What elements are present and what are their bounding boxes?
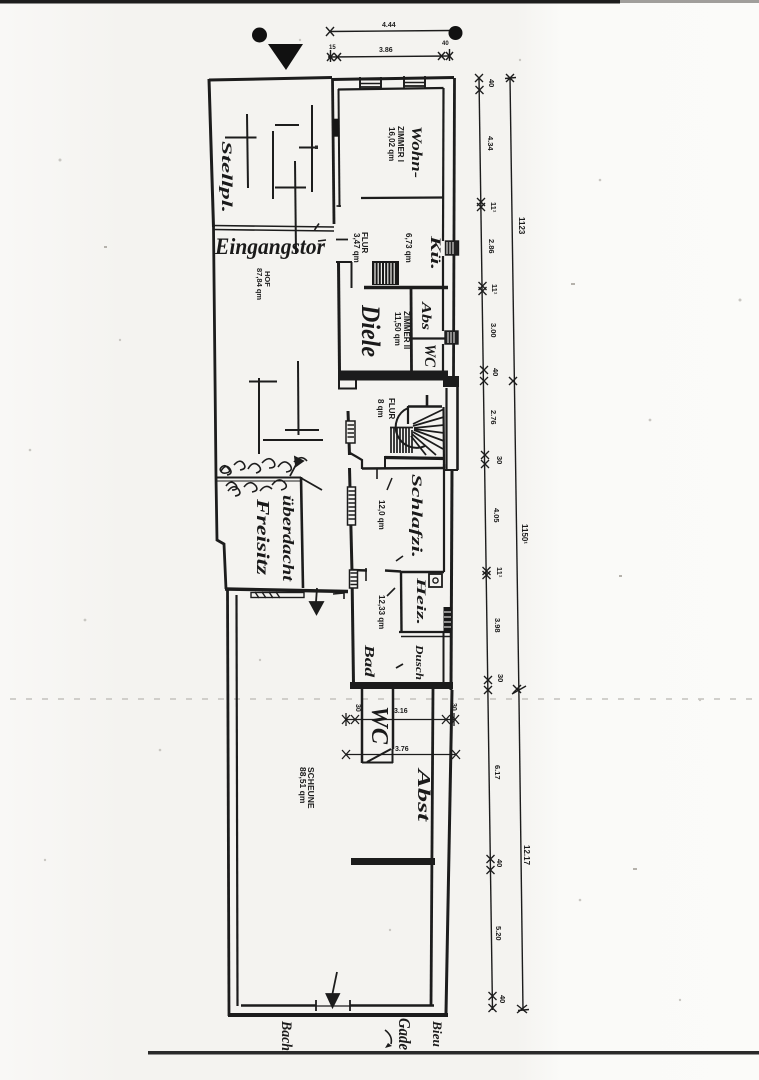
svg-text:12.17: 12.17 <box>522 845 531 866</box>
svg-text:11¹: 11¹ <box>495 567 504 578</box>
svg-text:40: 40 <box>442 41 449 47</box>
svg-text:Abst: Abst <box>414 767 434 822</box>
svg-text:1123: 1123 <box>517 217 526 235</box>
svg-text:Freisitz: Freisitz <box>253 498 273 575</box>
svg-text:15: 15 <box>329 45 336 51</box>
svg-text:40: 40 <box>491 368 500 376</box>
svg-text:16,02 qm: 16,02 qm <box>387 127 396 161</box>
svg-text:Gade: Gade <box>395 1018 414 1050</box>
svg-text:4.34: 4.34 <box>486 136 495 151</box>
svg-text:11¹: 11¹ <box>489 202 498 213</box>
svg-text:Abs: Abs <box>418 301 433 331</box>
svg-text:Wohn-: Wohn- <box>408 126 424 178</box>
svg-text:4.44: 4.44 <box>382 22 396 29</box>
svg-text:30: 30 <box>496 674 505 682</box>
svg-text:Heiz.: Heiz. <box>414 576 429 625</box>
svg-text:WC: WC <box>366 706 392 745</box>
svg-text:Eingangstor: Eingangstor <box>214 234 326 259</box>
svg-text:2.76: 2.76 <box>489 410 498 425</box>
svg-text:3,47 qm: 3,47 qm <box>352 233 361 263</box>
svg-text:1150¹: 1150¹ <box>520 524 529 544</box>
svg-text:3.98: 3.98 <box>493 618 502 633</box>
svg-text:12,33 qm: 12,33 qm <box>377 595 386 629</box>
svg-text:überdacht: überdacht <box>279 495 296 582</box>
svg-text:Dusch: Dusch <box>413 644 425 680</box>
svg-text:4.05: 4.05 <box>492 508 501 523</box>
svg-text:12,0 qm: 12,0 qm <box>377 500 386 530</box>
svg-text:Stellpl.: Stellpl. <box>218 141 234 213</box>
svg-text:40: 40 <box>487 79 496 87</box>
svg-text:40: 40 <box>495 859 504 867</box>
svg-text:3.16: 3.16 <box>394 708 408 715</box>
svg-text:8 qm: 8 qm <box>376 399 385 418</box>
svg-text:3.00: 3.00 <box>489 323 498 338</box>
svg-text:3.86: 3.86 <box>379 47 393 54</box>
svg-text:ZIMMER I: ZIMMER I <box>396 126 405 162</box>
svg-text:ZIMMER II: ZIMMER II <box>402 311 411 349</box>
svg-text:11¹: 11¹ <box>490 284 499 295</box>
svg-text:5.20: 5.20 <box>494 926 503 941</box>
svg-text:30: 30 <box>354 704 361 712</box>
svg-text:FLUR: FLUR <box>387 398 396 420</box>
svg-text:Diele: Diele <box>356 304 385 357</box>
svg-text:11,50 qm: 11,50 qm <box>393 312 402 346</box>
svg-text:Bad: Bad <box>361 644 376 679</box>
svg-text:Bieu: Bieu <box>430 1020 445 1047</box>
svg-text:87,84 qm: 87,84 qm <box>255 268 264 300</box>
svg-text:2.86: 2.86 <box>487 239 496 254</box>
svg-text:WC: WC <box>421 344 438 367</box>
svg-text:88,51 qm: 88,51 qm <box>298 767 308 804</box>
svg-text:3.76: 3.76 <box>395 746 409 753</box>
svg-text:Schlafzi.: Schlafzi. <box>408 474 424 558</box>
svg-text:Kü.: Kü. <box>427 234 443 270</box>
svg-text:40: 40 <box>498 995 507 1003</box>
svg-text:6.17: 6.17 <box>493 765 502 780</box>
svg-text:6,73 qm: 6,73 qm <box>404 233 413 263</box>
svg-text:30: 30 <box>495 456 504 464</box>
svg-text:Bach: Bach <box>278 1020 294 1051</box>
